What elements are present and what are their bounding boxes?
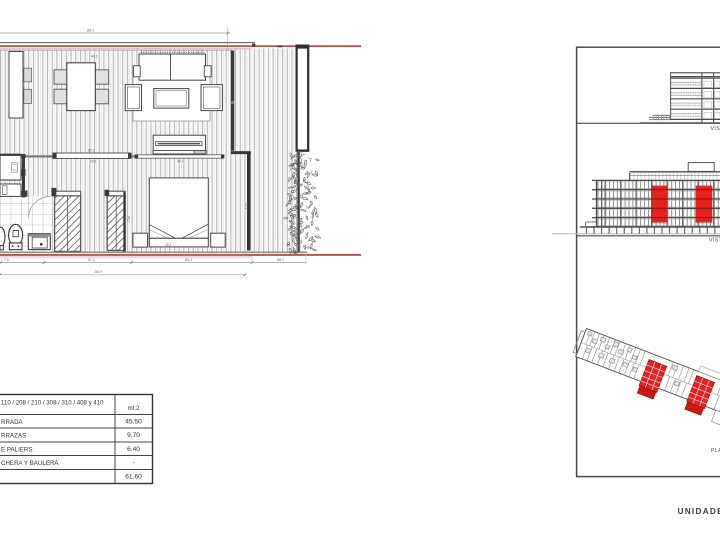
svg-text:61.60: 61.60 xyxy=(125,473,142,480)
svg-text:87.1: 87.1 xyxy=(88,258,95,262)
svg-text:PLANTA: PLANTA xyxy=(711,448,720,454)
svg-text:9.70: 9.70 xyxy=(127,432,140,439)
svg-text:6.40: 6.40 xyxy=(127,446,140,453)
svg-text:110 / 208 / 210 / 308 / 310 /: 110 / 208 / 210 / 308 / 310 / 408 y 410 xyxy=(1,400,104,407)
svg-text:29.1: 29.1 xyxy=(90,160,97,164)
svg-text:VISTA: VISTA xyxy=(711,126,720,132)
svg-text:E PALIERS: E PALIERS xyxy=(1,446,33,453)
svg-text:mt.2: mt.2 xyxy=(128,406,140,412)
svg-text:-: - xyxy=(132,459,134,466)
svg-text:85.9: 85.9 xyxy=(95,270,102,274)
svg-text:45.50: 45.50 xyxy=(125,419,142,426)
svg-text:30.1: 30.1 xyxy=(245,203,249,209)
svg-text:CHERA Y BAULERA: CHERA Y BAULERA xyxy=(1,460,59,467)
svg-text:86.1: 86.1 xyxy=(127,216,131,222)
svg-text:88.1: 88.1 xyxy=(87,28,96,33)
svg-text:45.2: 45.2 xyxy=(165,243,172,247)
svg-text:40.1: 40.1 xyxy=(177,159,184,163)
svg-text:7.5: 7.5 xyxy=(4,258,9,262)
svg-text:VISTA: VISTA xyxy=(709,238,720,244)
svg-text:48.1: 48.1 xyxy=(91,54,98,58)
svg-text:88.7: 88.7 xyxy=(277,258,284,262)
svg-text:RRAZAS: RRAZAS xyxy=(1,433,26,440)
svg-text:RRADA: RRADA xyxy=(1,419,24,426)
svg-text:85.3: 85.3 xyxy=(185,258,192,262)
svg-text:85.2: 85.2 xyxy=(88,149,95,153)
svg-text:UNIDADES 110: UNIDADES 110 xyxy=(678,507,720,516)
